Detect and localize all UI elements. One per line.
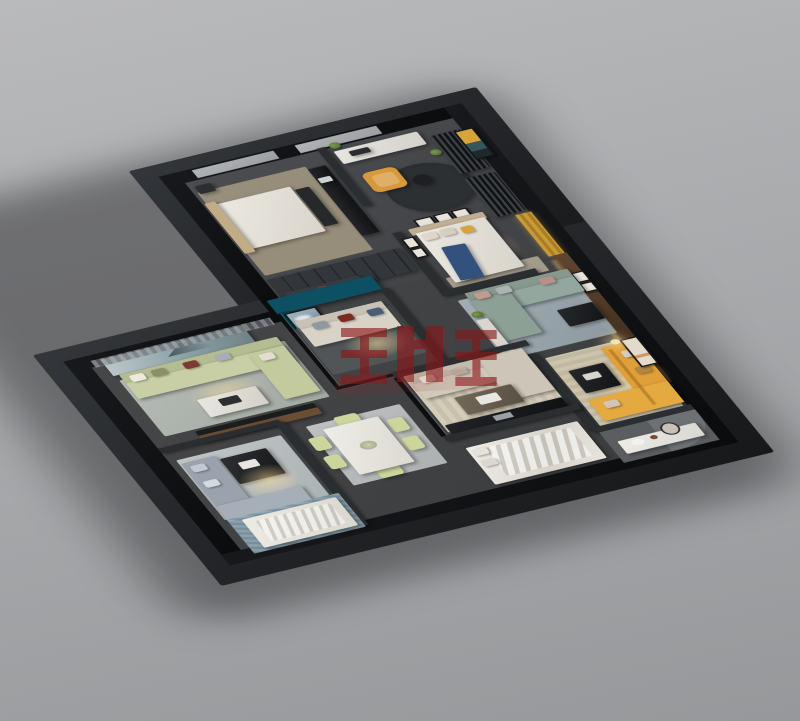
watermark xyxy=(341,324,531,394)
rendered-floorplan-image: { "scene": { "kind": "3d-dollhouse-floor… xyxy=(0,0,800,721)
